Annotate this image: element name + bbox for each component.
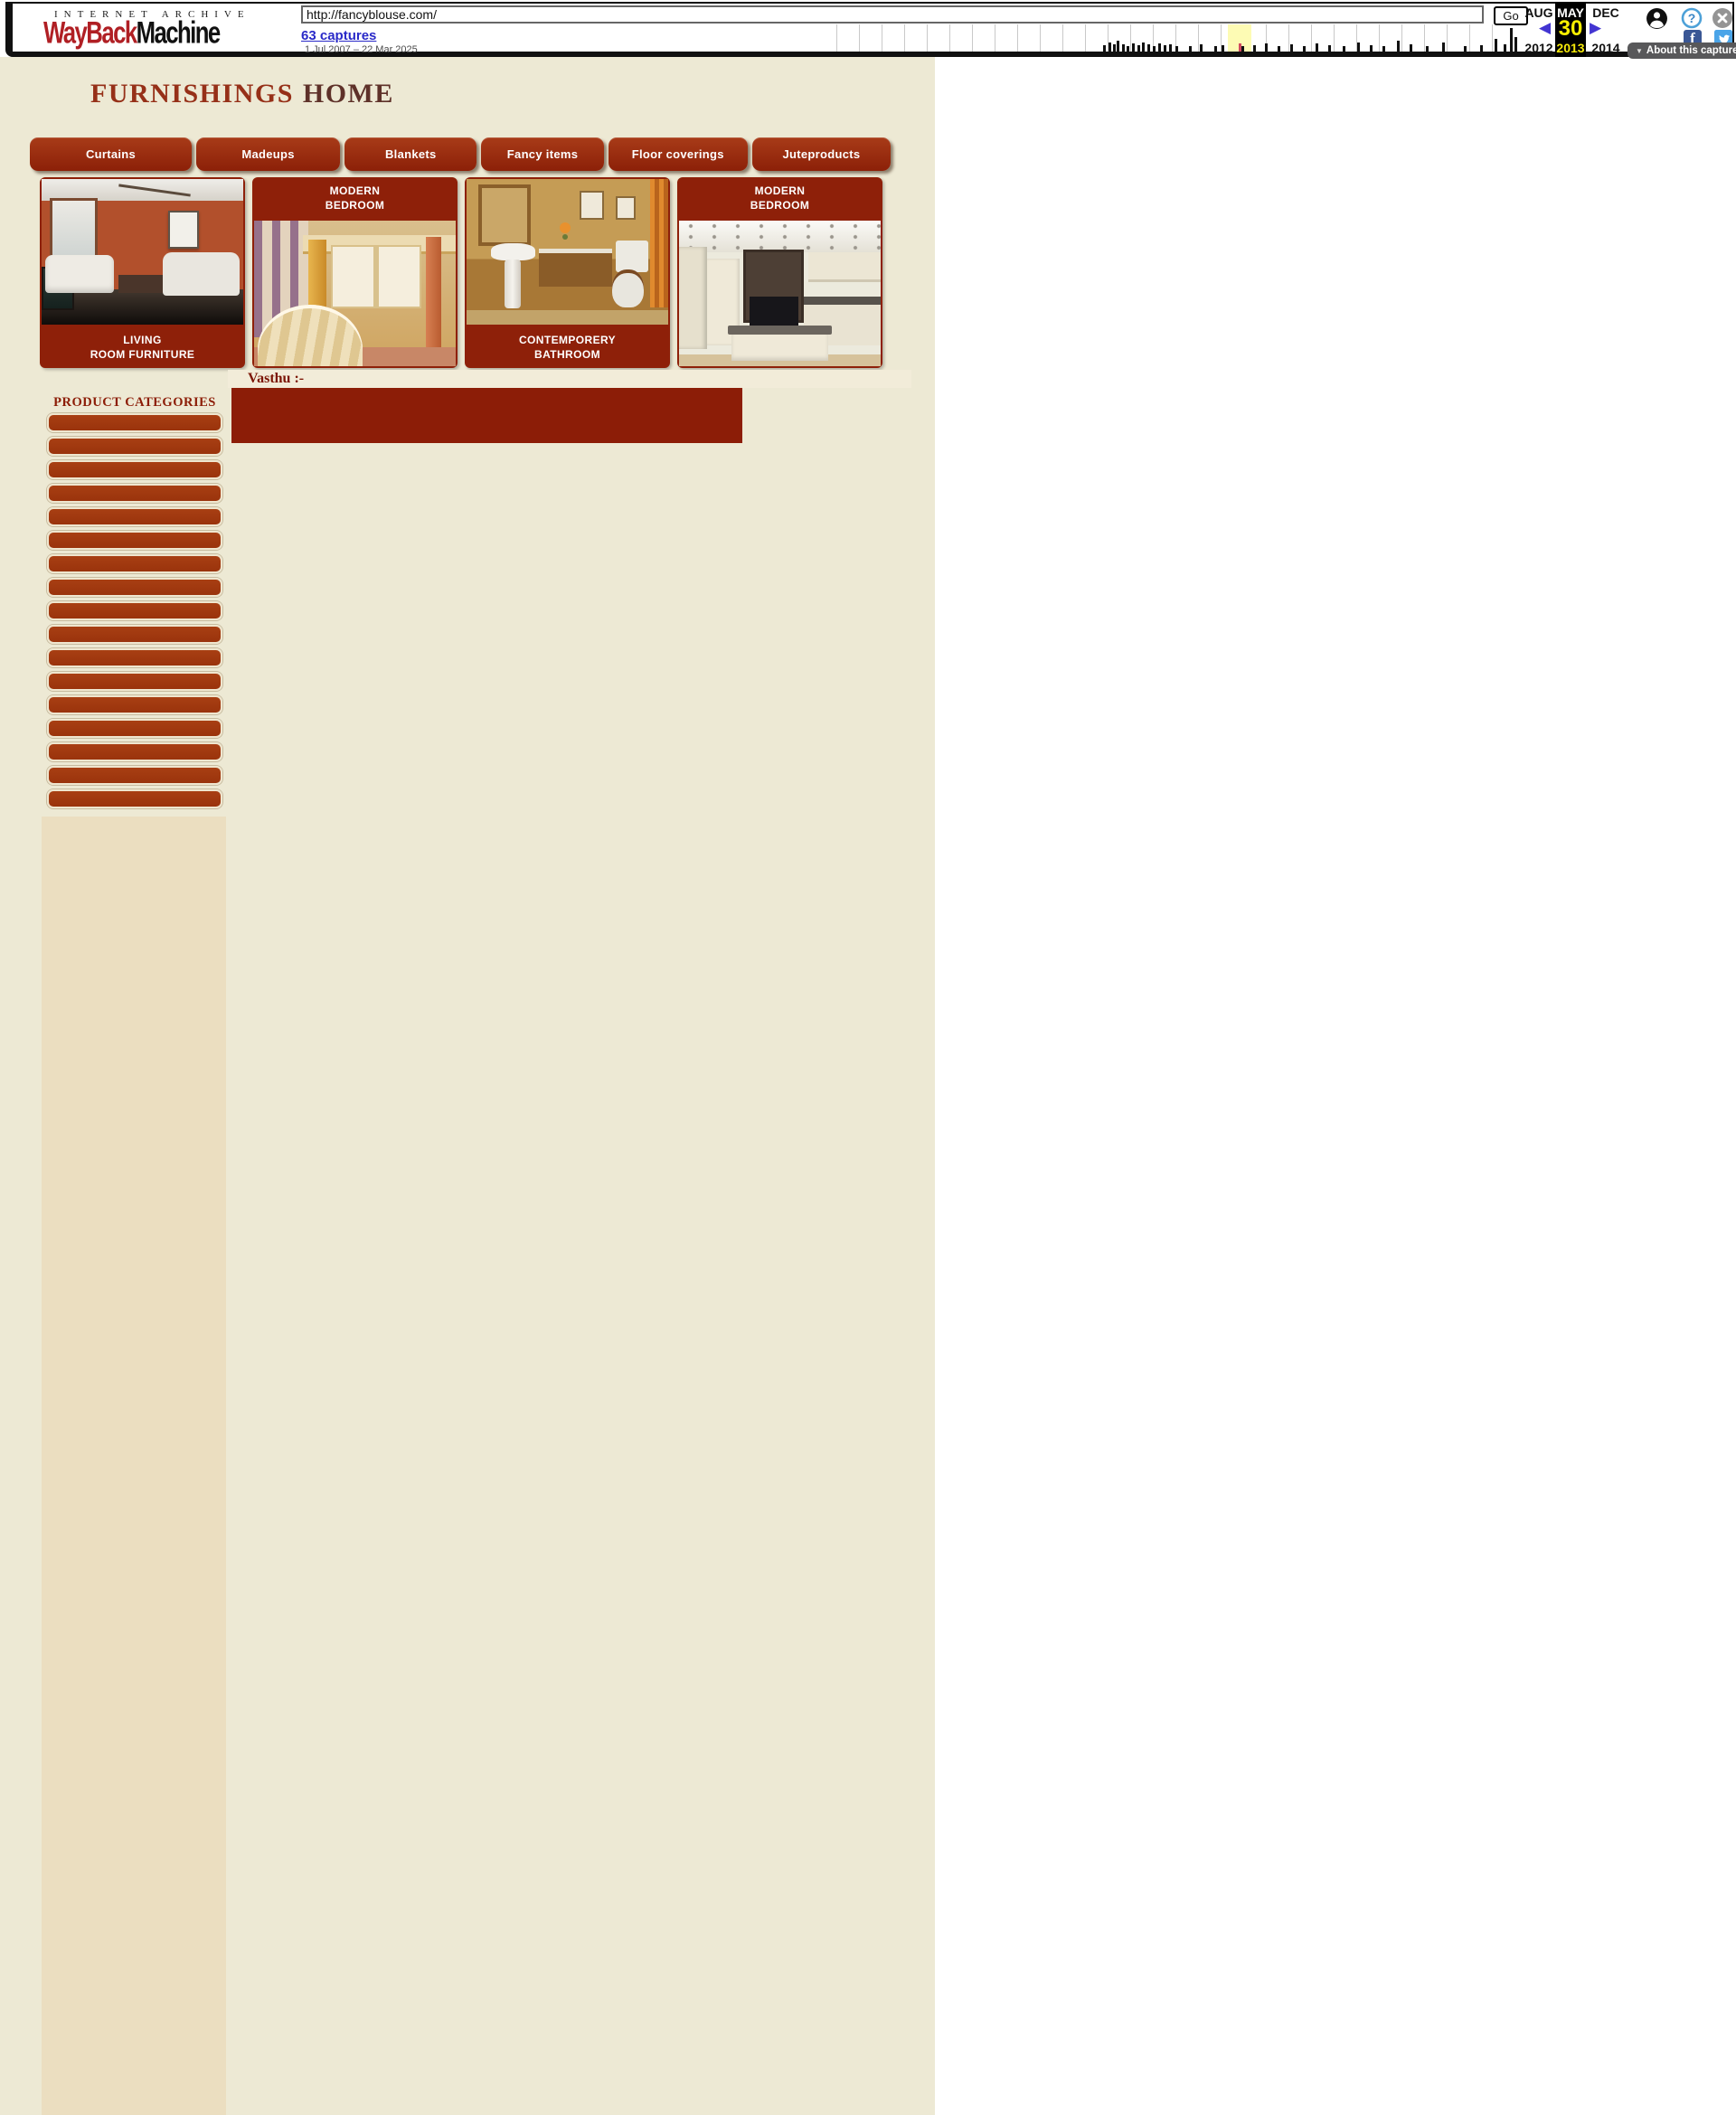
timeline-bar <box>1175 46 1178 52</box>
category-button[interactable] <box>47 531 222 550</box>
card-caption: LIVINGROOM FURNITURE <box>40 326 245 368</box>
wayback-toolbar: INTERNET ARCHIVE WayBackMachine Go 63 ca… <box>5 2 1734 57</box>
timeline-bar <box>1278 46 1280 52</box>
vasthu-section-band: Vasthu :- <box>228 370 911 388</box>
card-contemporary-bathroom[interactable]: CONTEMPORERYBATHROOM <box>465 177 670 368</box>
profile-icon[interactable] <box>1646 7 1668 34</box>
timeline-bar <box>1222 45 1224 52</box>
timeline-bar <box>1147 44 1150 52</box>
product-categories-heading: PRODUCT CATEGORIES <box>47 395 222 411</box>
tab-madeups[interactable]: Madeups <box>196 137 340 171</box>
tab-curtains[interactable]: Curtains <box>30 137 192 171</box>
timeline-bar <box>1382 46 1385 52</box>
capture-day: 30 <box>1555 16 1586 42</box>
timeline-bar <box>1142 42 1145 52</box>
bathroom-photo[interactable] <box>467 179 668 325</box>
timeline-bar <box>1158 43 1161 52</box>
timeline-bar <box>1265 43 1268 52</box>
timeline-bar <box>1200 44 1203 52</box>
wayback-machine-logo[interactable]: WayBackMachine <box>43 16 220 48</box>
timeline-bar <box>1397 41 1400 52</box>
prev-capture-arrow[interactable]: ◀ <box>1539 20 1551 35</box>
timeline-bar <box>1241 46 1244 52</box>
product-category-list <box>47 413 222 813</box>
capture-date-range: 1 Jul 2007 – 22 Mar 2025 <box>305 44 418 55</box>
content-placeholder-block <box>231 388 742 443</box>
about-this-capture-label: About this capture <box>1646 45 1736 56</box>
page-title: FURNISHINGSHOME <box>90 79 394 109</box>
title-furnishings: FURNISHINGS <box>90 79 294 109</box>
timeline-bar <box>1426 46 1429 52</box>
timeline-bar <box>1189 46 1192 52</box>
timeline-bar <box>1370 45 1373 52</box>
timeline-sparkline[interactable] <box>836 24 1514 52</box>
timeline-bar <box>1122 44 1125 52</box>
card-caption: CONTEMPORERYBATHROOM <box>465 326 670 368</box>
dropdown-arrow-icon: ▼ <box>1636 47 1643 55</box>
category-button[interactable] <box>47 789 222 808</box>
timeline-bar <box>1495 39 1497 52</box>
tab-juteproducts[interactable]: Juteproducts <box>752 137 891 171</box>
card-modern-bedroom[interactable]: MODERNBEDROOM <box>252 177 458 368</box>
next-capture-arrow[interactable]: ▶ <box>1590 20 1601 35</box>
month-prev[interactable]: AUG <box>1524 5 1554 20</box>
timeline-bar <box>1328 45 1331 52</box>
category-button[interactable] <box>47 413 222 432</box>
kitchen-photo[interactable] <box>679 221 881 366</box>
category-button[interactable] <box>47 648 222 667</box>
url-input[interactable] <box>301 5 1484 24</box>
timeline-bar <box>1410 44 1412 52</box>
featured-cards: LIVINGROOM FURNITURE MODERNBEDROOM CONTE… <box>40 177 882 368</box>
main-nav-tabs: Curtains Madeups Blankets Fancy items Fl… <box>30 137 891 171</box>
timeline-bar <box>1113 44 1116 52</box>
timeline-bar <box>1303 46 1306 52</box>
timeline-bar <box>1442 42 1445 52</box>
category-button[interactable] <box>47 437 222 456</box>
timeline-bar <box>1169 44 1172 52</box>
timeline-bar <box>1164 45 1166 52</box>
timeline-bar <box>1103 45 1106 52</box>
timeline-bar <box>1510 28 1513 52</box>
month-next[interactable]: DEC <box>1588 5 1624 20</box>
vasthu-label: Vasthu :- <box>248 371 304 387</box>
tab-floor-coverings[interactable]: Floor coverings <box>609 137 748 171</box>
logo-machine-text: Machine <box>137 14 220 50</box>
timeline-bar <box>1316 43 1318 52</box>
timeline-bar <box>1253 45 1256 52</box>
bedroom-photo[interactable] <box>254 221 456 366</box>
category-button[interactable] <box>47 484 222 503</box>
timeline-bar <box>1137 45 1140 52</box>
timeline-bar <box>1514 37 1517 52</box>
timeline-bar <box>1117 41 1119 52</box>
tab-fancy-items[interactable]: Fancy items <box>481 137 603 171</box>
timeline-bar <box>1214 46 1217 52</box>
tab-blankets[interactable]: Blankets <box>344 137 476 171</box>
category-button[interactable] <box>47 672 222 691</box>
card-modern-kitchen[interactable]: MODERNBEDROOM <box>677 177 882 368</box>
category-button[interactable] <box>47 695 222 714</box>
timeline-bar <box>1132 43 1135 52</box>
timeline-bar <box>1127 46 1129 52</box>
sidebar-column <box>42 817 226 2115</box>
year-next[interactable]: 2014 <box>1588 41 1624 55</box>
timeline-bar <box>1109 42 1111 52</box>
logo-wayback-text: WayBack <box>43 14 137 50</box>
year-prev[interactable]: 2012 <box>1522 41 1556 55</box>
category-button[interactable] <box>47 578 222 597</box>
category-button[interactable] <box>47 554 222 573</box>
category-button[interactable] <box>47 601 222 620</box>
timeline-bar <box>1464 46 1467 52</box>
timeline-bar <box>1343 46 1345 52</box>
category-button[interactable] <box>47 719 222 738</box>
archived-page: FURNISHINGSHOME Curtains Madeups Blanket… <box>0 57 935 2115</box>
about-this-capture-button[interactable]: ▼About this capture <box>1627 42 1736 59</box>
card-caption: MODERNBEDROOM <box>252 177 458 219</box>
title-home: HOME <box>303 79 394 109</box>
timeline-bar <box>1290 44 1293 52</box>
category-button[interactable] <box>47 460 222 479</box>
timeline-bar <box>1480 45 1483 52</box>
living-room-photo[interactable] <box>42 179 243 325</box>
category-button[interactable] <box>47 507 222 526</box>
timeline-bar <box>1153 46 1156 52</box>
category-button[interactable] <box>47 766 222 785</box>
timeline-bar <box>1357 42 1360 52</box>
timeline-bar <box>1504 44 1506 52</box>
year-current: 2013 <box>1555 41 1586 55</box>
svg-text:?: ? <box>1688 11 1696 25</box>
category-button[interactable] <box>47 625 222 644</box>
category-button[interactable] <box>47 742 222 761</box>
captures-link[interactable]: 63 captures <box>301 28 376 43</box>
card-living-room[interactable]: LIVINGROOM FURNITURE <box>40 177 245 368</box>
card-caption: MODERNBEDROOM <box>677 177 882 219</box>
